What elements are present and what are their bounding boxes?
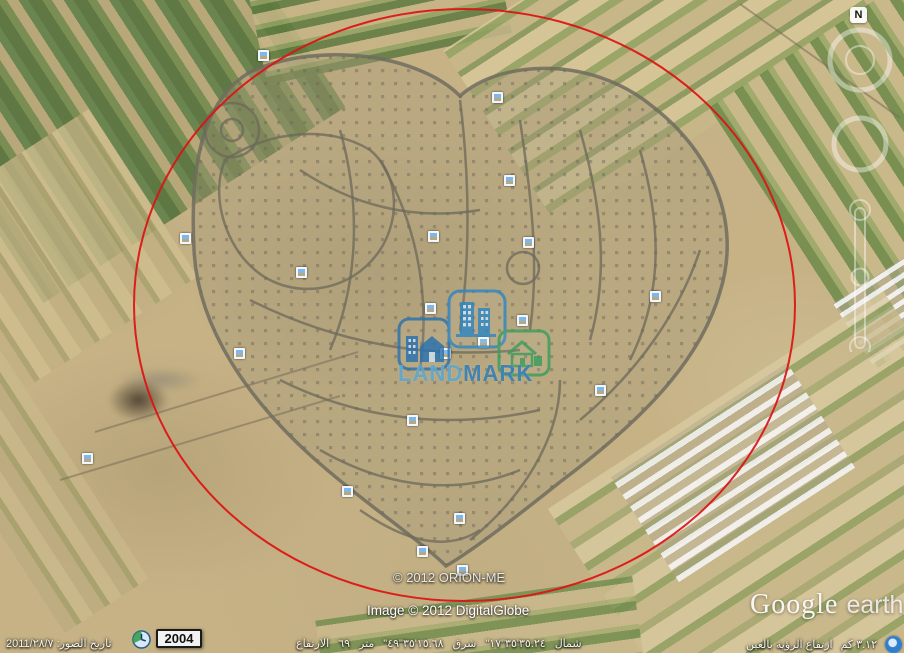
eye-altitude-icon: [885, 636, 902, 653]
google-earth-viewport[interactable]: LANDMARK N © 2012 ORION-ME Image © 2012 …: [0, 0, 904, 653]
imagery-date-field: تاريخ الصور: 2011/٢٨/٧: [6, 637, 112, 650]
photo-placemark-icon[interactable]: [595, 385, 606, 396]
google-earth-logo: Google earth: [750, 589, 903, 621]
elevation-value: ٦٩: [338, 637, 350, 650]
elevation-unit: متر: [359, 637, 374, 650]
photo-placemark-icon[interactable]: [504, 175, 515, 186]
latitude-direction: شمال: [555, 637, 582, 650]
move-joystick-ring: [834, 118, 886, 170]
longitude-value: "١٥.٦٨'٣٥"٤٩: [383, 637, 443, 650]
compass-north-button[interactable]: N: [850, 7, 867, 23]
landmark-logo: LANDMARK: [396, 288, 556, 392]
landmark-logo-text: LANDMARK: [398, 360, 548, 387]
photo-placemark-icon[interactable]: [454, 513, 465, 524]
photo-placemark-icon[interactable]: [523, 237, 534, 248]
navigation-controls[interactable]: [818, 22, 904, 352]
copyright-digitalglobe: Image © 2012 DigitalGlobe: [367, 603, 529, 618]
photo-placemark-icon[interactable]: [296, 267, 307, 278]
longitude-direction: شرق: [453, 637, 477, 650]
photo-placemark-icon[interactable]: [650, 291, 661, 302]
historical-imagery-clock-icon[interactable]: [132, 630, 151, 649]
photo-placemark-icon[interactable]: [234, 348, 245, 359]
google-logo-text: Google: [750, 589, 838, 621]
photo-placemark-icon[interactable]: [82, 453, 93, 464]
timeline-year-box[interactable]: 2004: [156, 629, 202, 648]
look-ring: [830, 30, 890, 90]
eye-altitude-value: ٣.١٢ كم: [841, 638, 877, 651]
photo-placemark-icon[interactable]: [407, 415, 418, 426]
zoom-slider-knob: [852, 269, 869, 286]
photo-placemark-icon[interactable]: [180, 233, 191, 244]
coordinates-elevation-field: الارتفاع ٦٩ متر "١٥.٦٨'٣٥"٤٩ شرق "٣٥.٢٤'…: [296, 637, 582, 650]
eye-altitude-label: ارتفاع الرؤية بالعين: [746, 638, 833, 651]
elevation-label: الارتفاع: [296, 637, 329, 650]
copyright-orion: © 2012 ORION-ME: [393, 570, 505, 585]
eye-altitude-field: ارتفاع الرؤية بالعين ٣.١٢ كم: [746, 636, 902, 653]
look-ring-inner: [846, 46, 874, 74]
imagery-date-value: 2011/٢٨/٧: [6, 638, 54, 650]
photo-placemark-icon[interactable]: [342, 486, 353, 497]
photo-placemark-icon[interactable]: [492, 92, 503, 103]
photo-placemark-icon[interactable]: [258, 50, 269, 61]
photo-placemark-icon[interactable]: [417, 546, 428, 557]
latitude-value: "٣٥.٢٤'٣٥"١٧: [485, 637, 545, 650]
earth-logo-text: earth: [846, 591, 903, 620]
photo-placemark-icon[interactable]: [428, 231, 439, 242]
